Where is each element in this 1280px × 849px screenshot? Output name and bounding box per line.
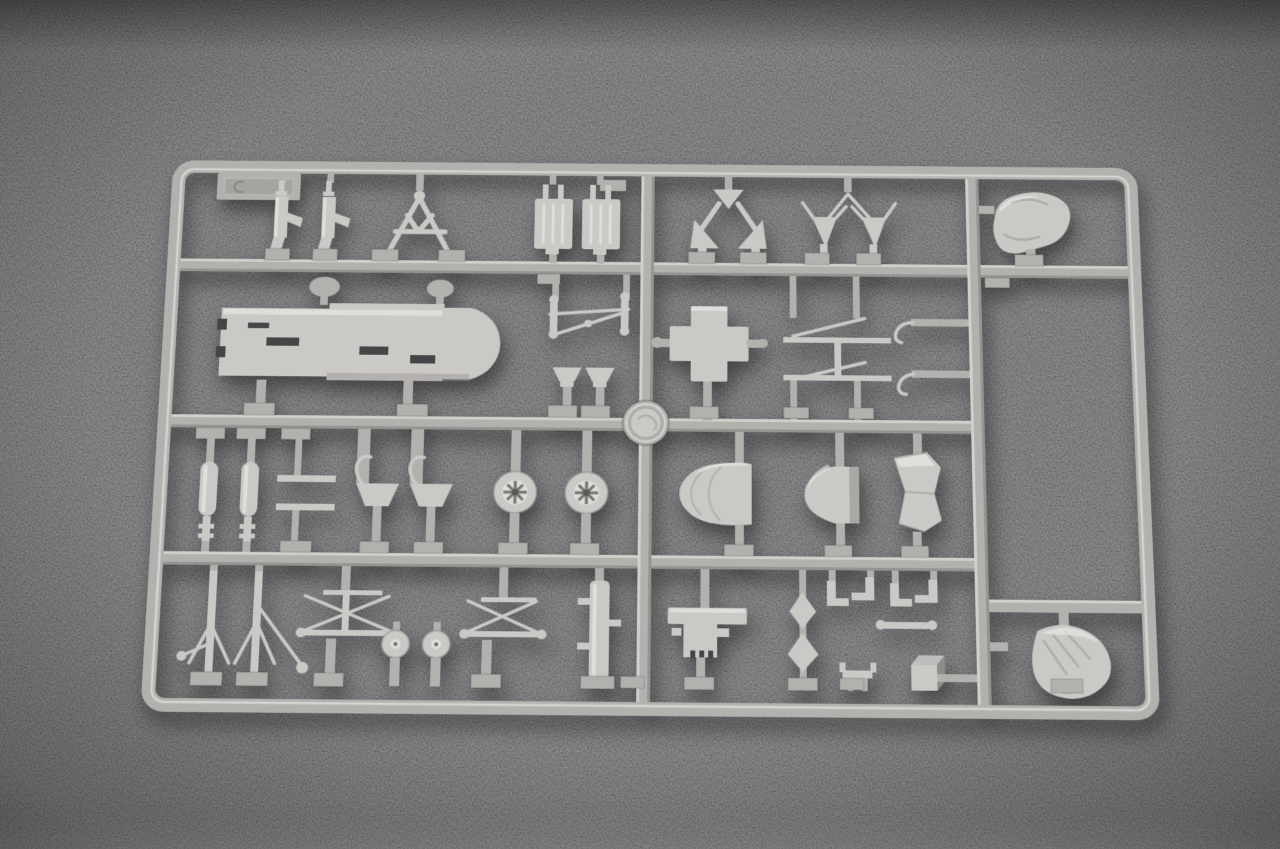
part-oleo-strut-1 bbox=[189, 427, 225, 551]
part-gun-receiver bbox=[667, 569, 747, 690]
part-landing-gear-tripod bbox=[175, 565, 313, 687]
rail-tab bbox=[985, 278, 1010, 288]
part-oleo-strut-2 bbox=[230, 428, 266, 552]
part-disc-wheel-2 bbox=[421, 622, 451, 687]
part-t-lever-1 bbox=[277, 428, 338, 482]
part-aframe-truss bbox=[372, 174, 468, 261]
rail-tab bbox=[600, 180, 627, 192]
part-axle-fork-2 bbox=[407, 429, 454, 553]
part-cowling-half bbox=[804, 433, 860, 557]
part-twin-v-brackets bbox=[802, 178, 896, 266]
part-funnel-scoop-2 bbox=[581, 368, 615, 418]
mold-medallion bbox=[622, 400, 669, 445]
part-spoked-wheel-1 bbox=[492, 430, 538, 554]
part-radiator-block-1 bbox=[534, 176, 574, 264]
part-fuselage-floor bbox=[212, 276, 502, 417]
part-ammo-box bbox=[911, 655, 977, 691]
part-arrowhead-bracket bbox=[787, 570, 819, 691]
part-cross-mount bbox=[651, 306, 768, 421]
photo bbox=[0, 0, 1280, 849]
part-bracing-truss-2 bbox=[458, 567, 548, 688]
part-elbow-fittings bbox=[827, 570, 939, 630]
rail-tab bbox=[840, 678, 864, 690]
sprue-wrap bbox=[140, 160, 1160, 720]
runner-v-right bbox=[965, 179, 992, 705]
part-spoked-wheel-2 bbox=[564, 431, 609, 555]
part-pivot-bar bbox=[576, 568, 621, 689]
sprue-letter-tab bbox=[216, 173, 301, 200]
part-machine-gun-2 bbox=[312, 174, 352, 262]
runner-seat-shelf bbox=[989, 600, 1142, 614]
part-pilot-seat-bottom bbox=[989, 612, 1112, 699]
sprue bbox=[140, 160, 1160, 720]
runner-h1 bbox=[180, 258, 1128, 278]
part-funnel-scoop-1 bbox=[548, 367, 582, 417]
part-pilot-seat-top bbox=[979, 192, 1072, 267]
part-faceted-fairing bbox=[893, 433, 942, 557]
part-cowling-dome bbox=[679, 431, 754, 556]
part-gun-mount-yoke bbox=[688, 177, 766, 264]
part-axle-fork-1 bbox=[353, 429, 401, 553]
part-t-lever-2 bbox=[274, 503, 335, 552]
part-control-linkage bbox=[548, 274, 630, 339]
rail-tab bbox=[620, 676, 644, 688]
part-bracing-truss-1 bbox=[293, 566, 403, 687]
part-wing-struts bbox=[783, 276, 971, 421]
